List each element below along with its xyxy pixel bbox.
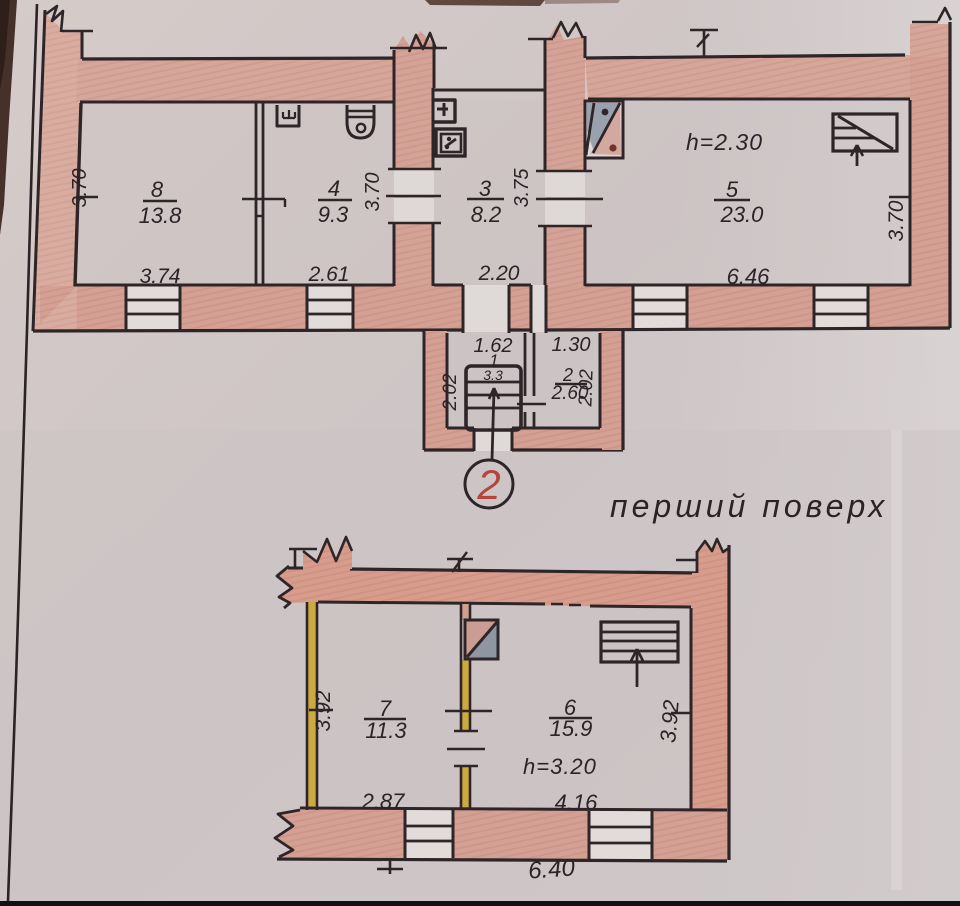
svg-text:4.16: 4.16: [555, 790, 599, 815]
svg-text:3.70: 3.70: [69, 169, 91, 208]
svg-text:15.9: 15.9: [550, 716, 593, 741]
svg-text:h=3.20: h=3.20: [523, 754, 597, 779]
svg-text:3.75: 3.75: [511, 168, 533, 208]
svg-text:2: 2: [562, 365, 573, 385]
svg-text:2.02: 2.02: [575, 369, 597, 408]
svg-text:3.92: 3.92: [655, 699, 684, 744]
svg-text:13.8: 13.8: [139, 203, 183, 228]
svg-text:8.2: 8.2: [471, 202, 502, 227]
svg-text:6.46: 6.46: [727, 264, 771, 289]
svg-text:перший поверх: перший поверх: [610, 488, 888, 524]
svg-text:3.3: 3.3: [483, 367, 503, 383]
svg-text:2: 2: [476, 461, 500, 508]
svg-text:2.61: 2.61: [308, 263, 350, 286]
svg-text:2.02: 2.02: [440, 373, 461, 411]
svg-text:3.74: 3.74: [140, 265, 181, 288]
svg-text:2.87: 2.87: [361, 789, 406, 814]
svg-text:2.20: 2.20: [478, 262, 520, 285]
svg-text:3.70: 3.70: [362, 173, 384, 212]
svg-text:9.3: 9.3: [318, 202, 349, 227]
svg-text:4: 4: [328, 176, 340, 201]
svg-text:3: 3: [479, 176, 492, 201]
svg-text:6.40: 6.40: [527, 854, 576, 884]
svg-text:3.92: 3.92: [312, 690, 335, 731]
svg-text:5: 5: [726, 177, 739, 202]
svg-text:3.70: 3.70: [885, 200, 908, 241]
svg-text:h=2.30: h=2.30: [686, 129, 763, 155]
svg-text:8: 8: [151, 177, 164, 202]
svg-text:11.3: 11.3: [365, 718, 407, 743]
svg-text:1.30: 1.30: [552, 334, 591, 356]
svg-text:23.0: 23.0: [720, 202, 765, 227]
